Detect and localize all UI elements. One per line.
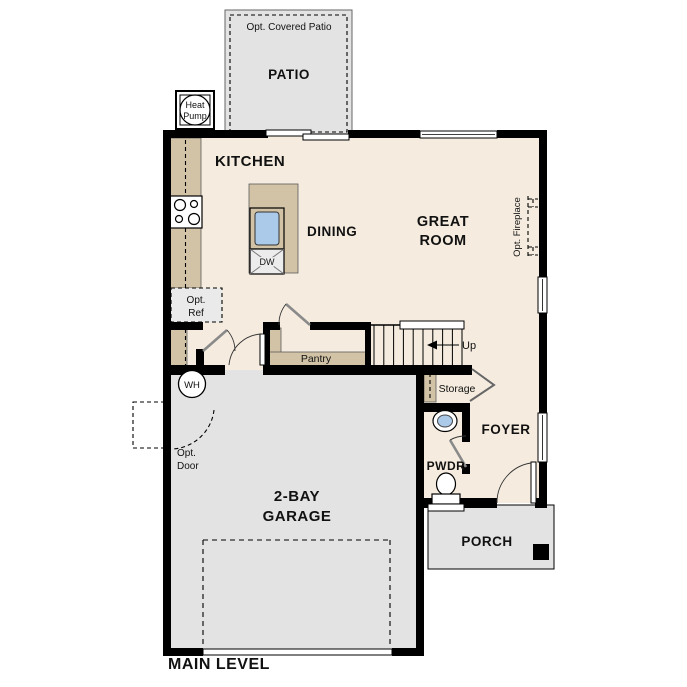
burner-icon [191,201,198,208]
opt-fireplace-label: Opt. Fireplace [512,197,523,257]
burner-icon [175,200,186,211]
heat-pump-label: Pump [183,111,207,121]
wall-segment [163,130,268,138]
porch-label: PORCH [461,534,512,549]
foyer-label: FOYER [481,422,530,437]
heat-pump-label: Heat [185,100,205,110]
burner-icon [176,216,183,223]
opt-door-label: Opt. [177,448,196,459]
porch-post [533,544,549,560]
floorplan-canvas: Opt. Covered Patio PATIO Heat Pump KITCH… [0,0,687,687]
level-title: MAIN LEVEL [168,656,270,673]
garage-door [203,649,392,655]
sink-icon [255,212,279,245]
wall-segment [365,322,371,372]
opt-ref-label: Ref [188,308,204,319]
wall-segment [196,349,204,367]
opt-door-label: Door [177,461,199,472]
garage-label: 2-BAY [274,488,320,505]
burner-icon [189,214,200,225]
pantry-label: Pantry [301,353,332,365]
wall-segment [163,130,171,656]
great-room-label: GREAT [417,214,469,230]
sliding-door-panel [303,134,349,140]
counter-upper [170,138,201,196]
floorplan-svg: Opt. Covered Patio PATIO Heat Pump KITCH… [0,0,687,687]
opt-covered-patio-label: Opt. Covered Patio [246,22,331,33]
optional-door-outline [133,402,168,448]
wall-segment [535,498,547,508]
wall-segment [263,365,472,375]
storage-label: Storage [439,383,476,395]
up-label: Up [462,340,476,352]
opt-ref-label: Opt. [187,295,206,306]
wall-segment [163,322,203,330]
pwdr-label: PWDR [427,459,466,473]
wall-segment [539,313,547,413]
stair-handrail [400,321,464,329]
wall-segment [310,322,367,330]
toilet-bowl-icon [437,473,456,495]
dining-label: DINING [307,224,357,239]
wall-segment [163,648,203,656]
water-heater-label: WH [184,380,200,391]
hall-door-panel [260,334,265,365]
toilet-base [428,504,464,511]
wall-segment [348,130,420,138]
wall-segment [539,130,547,277]
front-door-panel [531,462,536,503]
great-room-label: ROOM [419,233,466,249]
garage-label: GARAGE [263,508,332,525]
patio-label: PATIO [268,67,310,82]
kitchen-label: KITCHEN [215,153,285,170]
wall-segment [462,412,470,442]
wall-segment [392,648,424,656]
toilet-tank-icon [432,494,460,504]
dishwasher-label: DW [260,257,275,267]
pwdr-sink-basin [438,415,453,427]
